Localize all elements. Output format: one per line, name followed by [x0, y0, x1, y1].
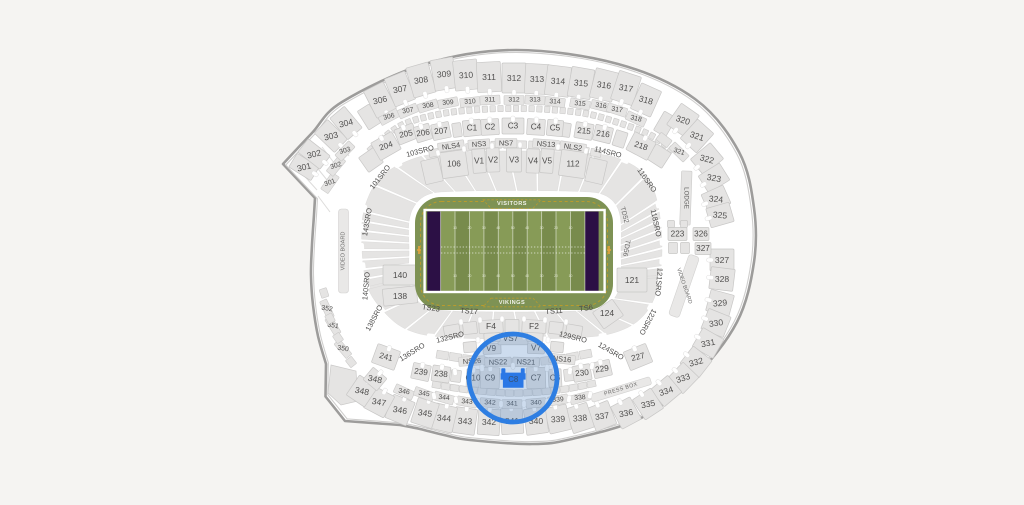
- svg-text:VIKINGS: VIKINGS: [499, 300, 526, 306]
- svg-text:329: 329: [712, 297, 727, 308]
- svg-text:312: 312: [508, 97, 520, 104]
- svg-text:345: 345: [417, 407, 433, 419]
- svg-text:138: 138: [393, 291, 407, 301]
- svg-text:VIDEO BOARD: VIDEO BOARD: [341, 232, 347, 271]
- svg-text:VISITORS: VISITORS: [497, 201, 527, 207]
- svg-text:315: 315: [574, 100, 586, 108]
- svg-text:NS3: NS3: [472, 139, 487, 149]
- svg-text:C3: C3: [508, 122, 519, 131]
- svg-text:313: 313: [530, 74, 545, 84]
- svg-text:330: 330: [708, 317, 724, 329]
- svg-text:NS13: NS13: [536, 139, 555, 149]
- svg-text:337: 337: [594, 410, 610, 422]
- svg-text:327: 327: [696, 244, 710, 253]
- svg-text:30: 30: [540, 226, 544, 230]
- svg-text:328: 328: [715, 274, 730, 284]
- svg-text:238: 238: [434, 369, 449, 379]
- svg-text:50: 50: [511, 226, 515, 230]
- svg-text:20: 20: [468, 274, 472, 278]
- svg-text:40: 40: [496, 226, 500, 230]
- svg-text:223: 223: [671, 230, 685, 239]
- svg-text:311: 311: [485, 97, 496, 104]
- svg-text:106: 106: [447, 160, 461, 169]
- svg-text:20: 20: [554, 274, 558, 278]
- svg-text:310: 310: [464, 98, 476, 106]
- svg-text:309: 309: [442, 99, 454, 107]
- svg-text:10: 10: [453, 226, 457, 230]
- svg-text:C5: C5: [550, 124, 561, 133]
- svg-text:313: 313: [529, 97, 541, 104]
- svg-text:F4: F4: [486, 321, 496, 331]
- svg-text:V1: V1: [474, 157, 484, 166]
- svg-text:20: 20: [468, 226, 472, 230]
- svg-text:V2: V2: [488, 156, 498, 165]
- svg-text:40: 40: [525, 274, 529, 278]
- svg-text:230: 230: [575, 368, 590, 378]
- svg-text:10: 10: [453, 274, 457, 278]
- svg-text:314: 314: [549, 98, 561, 106]
- svg-text:C1: C1: [467, 124, 478, 133]
- svg-text:TS11: TS11: [545, 306, 563, 316]
- svg-text:30: 30: [540, 274, 544, 278]
- svg-text:344: 344: [436, 412, 451, 423]
- svg-text:C4: C4: [531, 123, 542, 132]
- svg-text:50: 50: [511, 274, 515, 278]
- svg-text:TS6: TS6: [579, 303, 594, 314]
- svg-text:30: 30: [482, 226, 486, 230]
- svg-text:10: 10: [569, 274, 573, 278]
- svg-text:C2: C2: [485, 123, 496, 132]
- svg-text:316: 316: [596, 79, 612, 91]
- svg-text:V3: V3: [509, 156, 519, 165]
- svg-text:V4: V4: [528, 157, 538, 166]
- svg-text:40: 40: [496, 274, 500, 278]
- svg-text:338: 338: [572, 412, 587, 423]
- svg-text:C8: C8: [508, 375, 518, 384]
- svg-text:343: 343: [461, 398, 473, 406]
- svg-text:LODGE: LODGE: [682, 187, 689, 209]
- svg-text:339: 339: [551, 414, 566, 425]
- svg-text:F2: F2: [529, 321, 539, 331]
- svg-text:20: 20: [554, 226, 558, 230]
- svg-text:V5: V5: [542, 157, 552, 166]
- svg-text:124: 124: [600, 308, 614, 318]
- svg-text:310: 310: [459, 70, 474, 81]
- svg-text:121: 121: [625, 275, 639, 285]
- svg-text:338: 338: [574, 394, 586, 402]
- svg-text:343: 343: [458, 416, 473, 427]
- svg-text:315: 315: [573, 77, 588, 88]
- svg-text:40: 40: [525, 226, 529, 230]
- svg-text:326: 326: [694, 230, 708, 239]
- svg-text:344: 344: [438, 394, 450, 402]
- svg-text:324: 324: [708, 193, 723, 204]
- svg-text:309: 309: [436, 68, 451, 79]
- svg-text:215: 215: [577, 126, 592, 136]
- svg-text:NS7: NS7: [499, 139, 513, 148]
- svg-text:TS17: TS17: [460, 306, 479, 316]
- svg-text:327: 327: [715, 255, 730, 265]
- svg-text:311: 311: [482, 72, 496, 82]
- svg-text:308: 308: [413, 74, 429, 86]
- svg-text:10: 10: [569, 226, 573, 230]
- svg-text:140: 140: [393, 270, 407, 280]
- svg-text:314: 314: [551, 76, 566, 87]
- svg-text:207: 207: [434, 126, 449, 136]
- svg-text:312: 312: [507, 73, 522, 83]
- svg-text:112: 112: [566, 160, 579, 169]
- svg-text:325: 325: [712, 209, 727, 220]
- svg-text:30: 30: [482, 274, 486, 278]
